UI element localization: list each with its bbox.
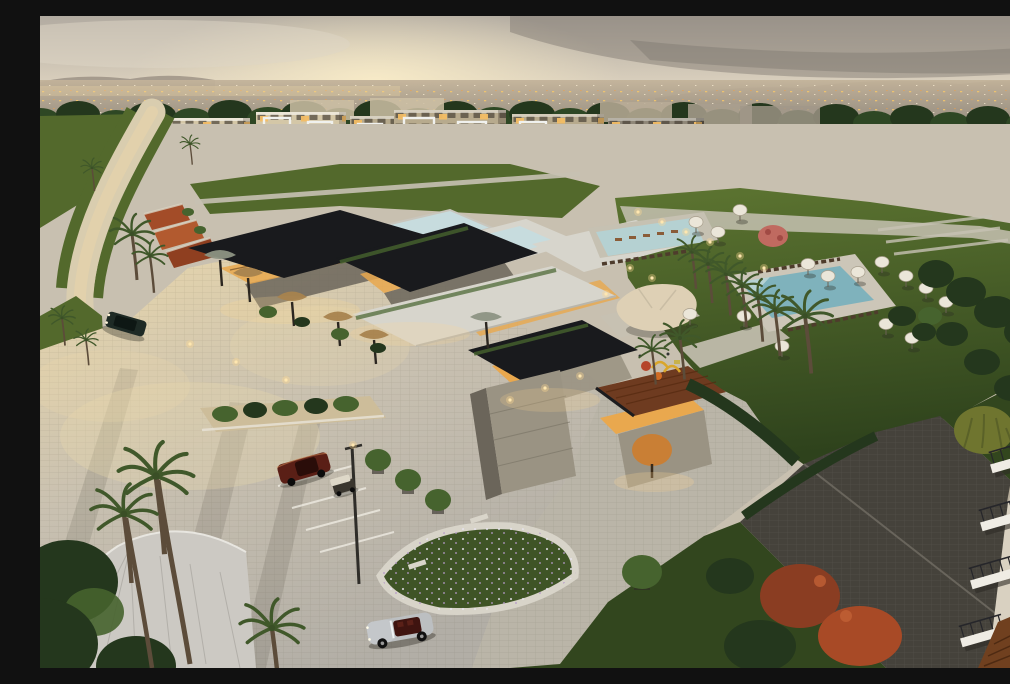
- uplit-tree: [632, 434, 672, 466]
- flowering-tree: [758, 225, 788, 247]
- aerial-compound-render: [40, 16, 1010, 668]
